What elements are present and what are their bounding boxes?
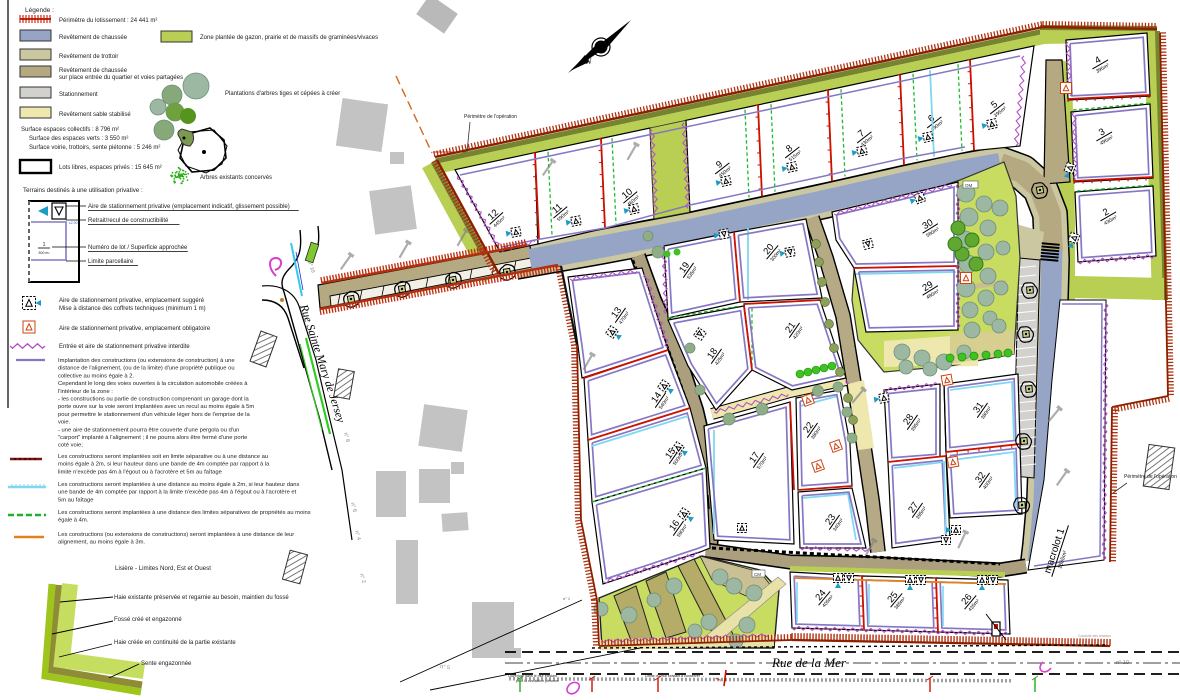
- svg-text:distance de l'alignement, (ou: distance de l'alignement, (ou de la limi…: [58, 366, 235, 372]
- svg-text:collective au moins égale à 2.: collective au moins égale à 2.: [58, 373, 134, 379]
- svg-text:Fossé créé et engazonné: Fossé créé et engazonné: [114, 617, 182, 623]
- svg-text:Retrait/recul de constructibil: Retrait/recul de constructibilité: [88, 218, 169, 224]
- svg-text:Aire de stationnement privativ: Aire de stationnement privative (emplace…: [88, 204, 290, 210]
- svg-text:500 m²: 500 m²: [39, 251, 51, 255]
- svg-text:Limite parcellaire: Limite parcellaire: [88, 259, 134, 265]
- svg-text:Haie existante préservée et re: Haie existante préservée et regarnie au …: [114, 595, 289, 601]
- svg-text:OM: OM: [965, 183, 973, 188]
- svg-text:Aire de stationnement privativ: Aire de stationnement privative, emplace…: [59, 326, 211, 332]
- svg-text:Implantation des constructions: Implantation des constructions (ou exten…: [58, 358, 235, 364]
- svg-text:CM: CM: [754, 572, 761, 577]
- svg-text:Mise à distance des coffrets t: Mise à distance des coffrets techniques …: [59, 306, 206, 312]
- svg-text:Cependant le long des voies ou: Cependant le long des voies ouvertes à l…: [58, 381, 248, 387]
- svg-text:Surface espaces collectifs : 8: Surface espaces collectifs : 8 796 m²: [21, 127, 119, 133]
- svg-text:Périmètre du lotissement : 24: Périmètre du lotissement : 24 441 m²: [59, 18, 157, 24]
- svg-text:limite n'excède pas 4m à l'égo: limite n'excède pas 4m à l'égout ou à l'…: [58, 469, 222, 475]
- svg-text:≥2.00: ≥2.00: [69, 221, 78, 225]
- svg-text:Limite du mur existant à conse: Limite du mur existant à conserver →: [645, 674, 705, 678]
- svg-text:alignement, au moins égale à 3: alignement, au moins égale à 3m.: [58, 540, 145, 546]
- svg-text:Plantations d'arbres tiges et: Plantations d'arbres tiges et cépées à c…: [225, 91, 340, 97]
- svg-text:égale à 4m.: égale à 4m.: [58, 518, 89, 524]
- svg-text:coté voie;: coté voie;: [58, 443, 83, 449]
- svg-text:moins égale à 2m, si leur haut: moins égale à 2m, si leur hauteur dans u…: [58, 462, 270, 468]
- svg-text:- les constructions ou partie: - les constructions ou partie de constru…: [58, 397, 250, 403]
- svg-text:Les constructions seront impla: Les constructions seront implantées à un…: [58, 510, 311, 516]
- svg-text:n° 1: n° 1: [563, 596, 571, 601]
- svg-text:Périmètre de l'opération: Périmètre de l'opération: [1124, 474, 1177, 480]
- svg-text:Ouverture dans le mur existant: Ouverture dans le mur existant: [508, 674, 557, 678]
- svg-text:Surface des espaces verts : 3: Surface des espaces verts : 3 550 m²: [29, 136, 128, 142]
- svg-text:Entrée et aire de stationnemen: Entrée et aire de stationnement privativ…: [59, 344, 190, 350]
- svg-text:5m au faîtage: 5m au faîtage: [58, 497, 93, 503]
- svg-text:Revêtement de chaussée: Revêtement de chaussée: [59, 68, 128, 74]
- svg-text:Conduite des réseaux: Conduite des réseaux: [1078, 634, 1111, 638]
- svg-text:Périmètre de l'opération: Périmètre de l'opération: [464, 114, 517, 120]
- svg-text:Revêtement de chaussée: Revêtement de chaussée: [59, 35, 128, 41]
- svg-text:Légende :: Légende :: [25, 7, 54, 14]
- svg-text:Lisière - Limites Nord, Est et: Lisière - Limites Nord, Est et Ouest: [115, 565, 211, 572]
- svg-text:Revêtement de trottoir: Revêtement de trottoir: [59, 54, 118, 60]
- svg-text:Aire de stationnement privativ: Aire de stationnement privative, emplace…: [59, 298, 205, 304]
- svg-text:Arbres existants concervés: Arbres existants concervés: [200, 175, 272, 181]
- svg-text:1: 1: [43, 242, 46, 248]
- svg-text:Sente engazonnée: Sente engazonnée: [141, 661, 192, 667]
- svg-text:porte ouvre sur la voie seront: porte ouvre sur la voie seront implantée…: [58, 404, 254, 410]
- svg-text:"carport" implanté à l'alignem: "carport" implanté à l'alignement ; il n…: [58, 435, 247, 441]
- svg-text:Les constructions seront impla: Les constructions seront implantées soit…: [58, 454, 268, 460]
- svg-text:Numéro de lot / Superficie app: Numéro de lot / Superficie approchée: [88, 245, 188, 251]
- svg-text:pour permettre le stationnemen: pour permettre le stationnement d'un véh…: [58, 412, 250, 418]
- svg-text:Stationnement: Stationnement: [59, 92, 98, 98]
- svg-text:l'intérieur de la zone :: l'intérieur de la zone :: [58, 389, 113, 395]
- svg-text:pour la circulation piétonne: pour la circulation piétonne: [516, 679, 559, 683]
- svg-text:Les constructions (ou extensio: Les constructions (ou extensions de cons…: [58, 532, 294, 538]
- svg-text:une bande de 4m comptée par ra: une bande de 4m comptée par rapport à la…: [58, 490, 297, 496]
- svg-text:Revêtement sable stabilisé: Revêtement sable stabilisé: [59, 112, 131, 118]
- svg-text:Haie créée en continuité de la: Haie créée en continuité de la partie ex…: [114, 640, 236, 646]
- svg-text:Surface voirie, trottoirs, sen: Surface voirie, trottoirs, sente piétonn…: [29, 145, 160, 151]
- svg-text:- une aire de stationnement po: - une aire de stationnement pourra être …: [58, 427, 239, 433]
- svg-text:Les constructions seront impla: Les constructions seront implantées à un…: [58, 482, 299, 488]
- svg-text:Zone plantée de gazon, prairie: Zone plantée de gazon, prairie et de mas…: [200, 35, 378, 41]
- svg-text:voie.: voie.: [58, 420, 71, 426]
- svg-text:sur place entrée du quartier e: sur place entrée du quartier et voies pa…: [59, 75, 183, 81]
- svg-text:Rue de la Mer: Rue de la Mer: [771, 655, 847, 670]
- svg-text:N: N: [585, 57, 592, 66]
- svg-text:Terrains destinés à une utilis: Terrains destinés à une utilisation priv…: [23, 187, 143, 194]
- svg-text:Lots libres, espaces privés :: Lots libres, espaces privés : 15 645 m²: [59, 165, 162, 171]
